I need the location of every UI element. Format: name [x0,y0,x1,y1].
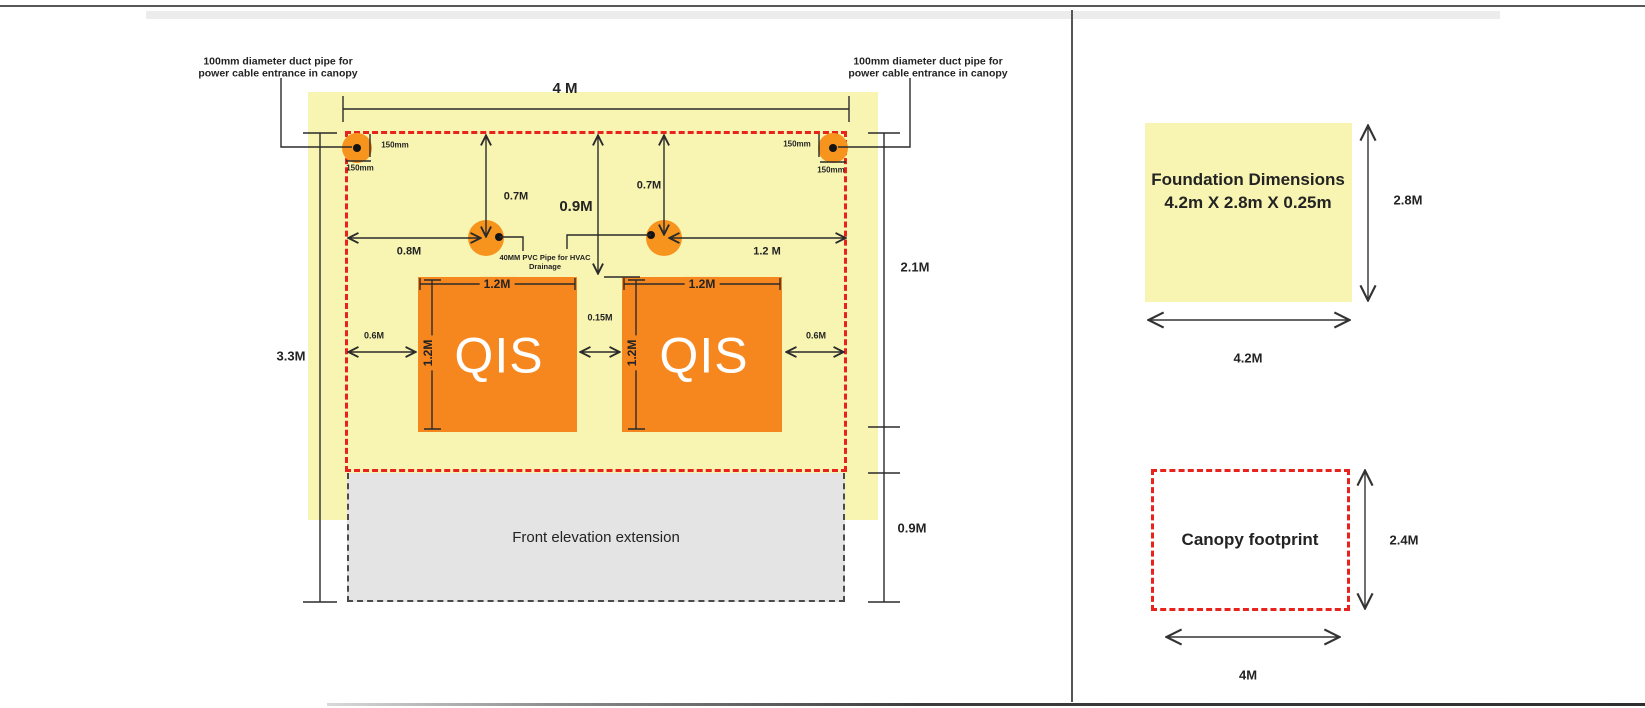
pvc-pipe-callout: 40MM PVC Pipe for HVAC Drainage [499,254,590,272]
dim-label-canopy-height: 2.4M [1390,532,1419,547]
dim-label-150mm-right-v: 150mm [783,139,811,148]
canopy-footprint-label: Canopy footprint [1182,530,1319,550]
dim-label-qis-right-height: 1.2M [625,336,639,371]
dim-label-0-15m: 0.15M [587,313,612,324]
dim-label-0-6m-right: 0.6M [806,331,826,342]
qis-unit-right-label: QIS [659,327,748,386]
dim-label-qis-left-height: 1.2M [421,336,435,371]
panel-divider-line [1071,10,1073,702]
foundation-dimensions-subtitle: 4.2m X 2.8m X 0.25m [1151,192,1345,215]
dim-label-0-9m-center: 0.9M [559,198,592,216]
bottom-rule [327,703,1645,706]
dim-label-1-2m-offset: 1.2 M [753,246,781,259]
duct-pipe-callout-left-line2: power cable entrance in canopy [198,68,357,80]
dim-label-foundation-height: 2.8M [1394,192,1423,207]
dim-label-2-1m: 2.1M [901,259,930,274]
dim-label-foundation-width: 4.2M [1234,350,1263,365]
dim-label-0-9m-right: 0.9M [898,520,927,535]
duct-pipe-callout-right: 100mm diameter duct pipe for power cable… [848,56,1007,81]
dim-label-0-6m-left: 0.6M [364,331,384,342]
pvc-pipe-callout-line2: Drainage [499,263,590,272]
dim-label-150mm-right-h: 150mm [817,165,845,174]
dim-label-150mm-left-v: 150mm [381,140,409,149]
dim-label-0-7m-right: 0.7M [637,180,661,193]
top-rule [0,5,1645,7]
dim-label-4m: 4 M [552,80,577,98]
foundation-dimensions-text: Foundation Dimensions 4.2m X 2.8m X 0.25… [1151,169,1345,215]
duct-pipe-callout-left-line1: 100mm diameter duct pipe for [198,56,357,68]
front-elevation-extension-label: Front elevation extension [512,529,680,547]
dim-label-qis-left-width: 1.2M [480,277,515,291]
qis-unit-left-label: QIS [454,327,543,386]
duct-pipe-callout-right-line2: power cable entrance in canopy [848,68,1007,80]
dim-label-0-7m-left: 0.7M [504,191,528,204]
top-gray-bar [146,11,1500,19]
dim-label-150mm-left-h: 150mm [346,163,374,172]
canopy-foundation-drawing: 100mm diameter duct pipe for power cable… [0,0,1645,708]
dim-label-0-8m: 0.8M [397,246,421,259]
dim-label-3-3m: 3.3M [277,348,306,363]
dim-label-qis-right-width: 1.2M [685,277,720,291]
duct-pipe-callout-right-line1: 100mm diameter duct pipe for [848,56,1007,68]
foundation-dimensions-title: Foundation Dimensions [1151,169,1345,192]
dim-label-canopy-width: 4M [1239,667,1257,682]
duct-pipe-callout-left: 100mm diameter duct pipe for power cable… [198,56,357,81]
